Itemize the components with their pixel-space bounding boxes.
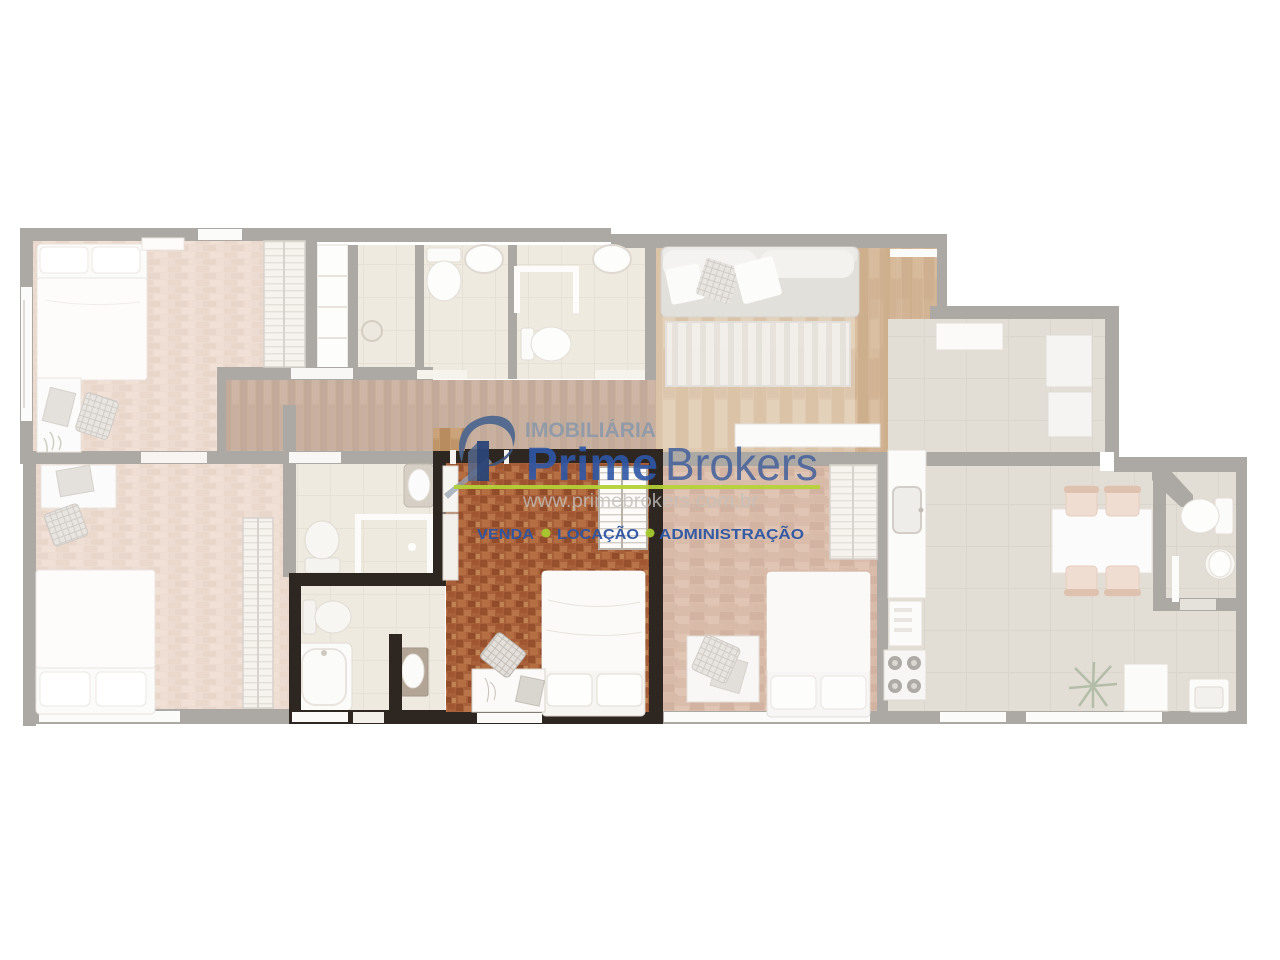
svg-text:Brokers: Brokers: [665, 438, 818, 490]
svg-text:Prime: Prime: [526, 438, 658, 490]
svg-text:ADMINISTRAÇÃO: ADMINISTRAÇÃO: [659, 525, 804, 543]
svg-text:VENDA: VENDA: [477, 526, 534, 543]
svg-text:LOCAÇÃO: LOCAÇÃO: [557, 525, 639, 543]
svg-text:www.primebrokers.com.br: www.primebrokers.com.br: [522, 491, 759, 512]
